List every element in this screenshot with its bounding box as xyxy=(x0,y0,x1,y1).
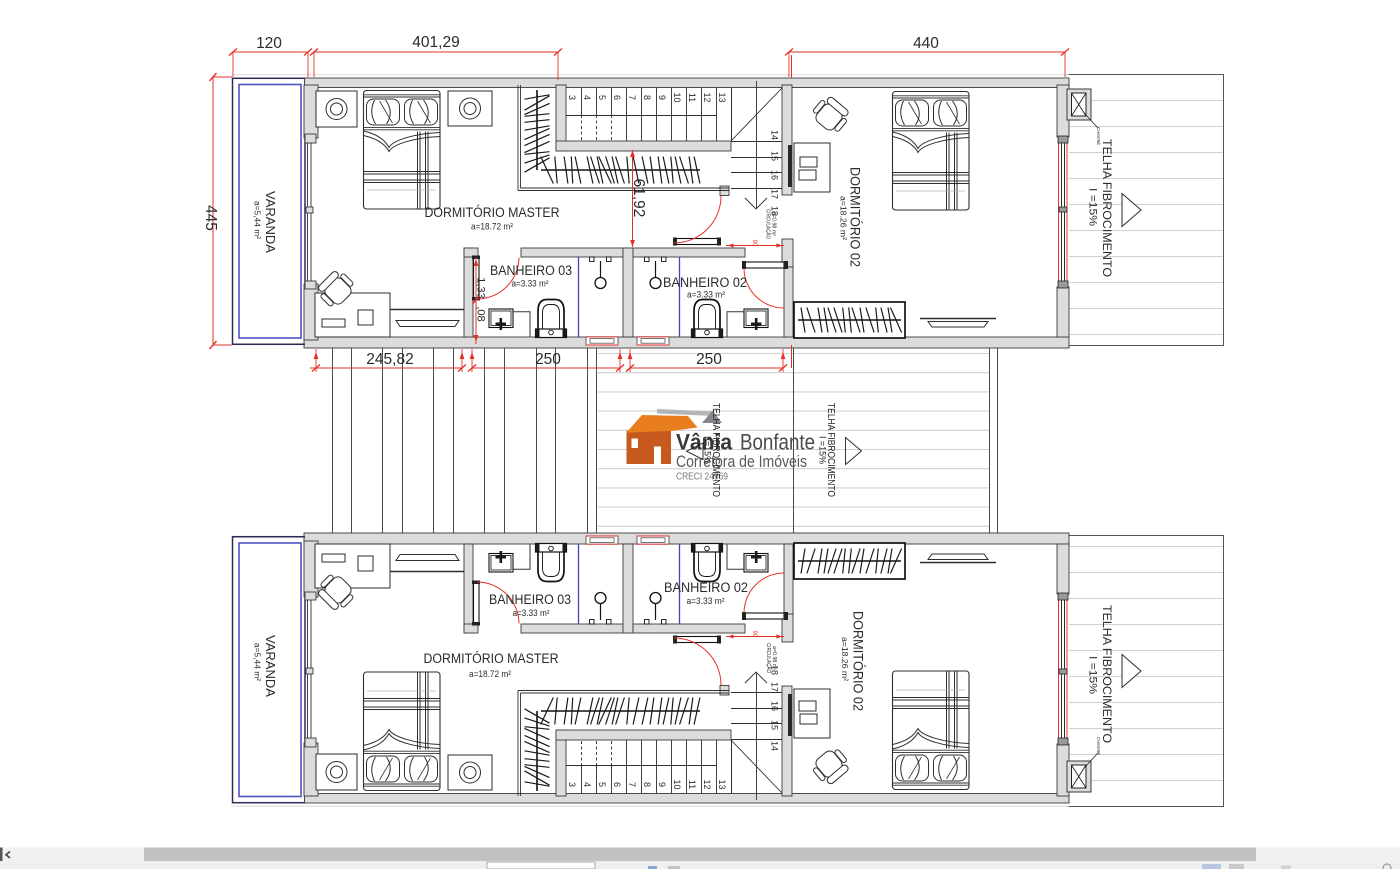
svg-text:TELHA FIBROCIMENTO: TELHA FIBROCIMENTO xyxy=(1100,605,1112,743)
svg-text:7: 7 xyxy=(627,782,637,787)
svg-text:Bonfante: Bonfante xyxy=(740,430,815,455)
svg-text:18: 18 xyxy=(770,206,780,216)
svg-text:15: 15 xyxy=(770,720,780,730)
svg-text:14: 14 xyxy=(770,130,780,140)
svg-text:VARANDA: VARANDA xyxy=(263,191,278,253)
svg-text:3: 3 xyxy=(567,95,577,100)
svg-text:7: 7 xyxy=(627,95,637,100)
svg-text:15: 15 xyxy=(770,151,780,161)
svg-text:13: 13 xyxy=(717,779,727,789)
svg-text:,08: ,08 xyxy=(475,306,487,321)
svg-text:a=5,44 m²: a=5,44 m² xyxy=(253,201,263,239)
svg-text:10: 10 xyxy=(672,92,682,102)
svg-text:DORMITÓRIO MASTER: DORMITÓRIO MASTER xyxy=(425,205,560,220)
svg-text:a=5,44 m²: a=5,44 m² xyxy=(253,643,263,681)
svg-text:5: 5 xyxy=(597,782,607,787)
svg-text:I =15%: I =15% xyxy=(703,436,713,464)
svg-text:6: 6 xyxy=(612,95,622,100)
svg-text:BANHEIRO 03: BANHEIRO 03 xyxy=(489,592,571,607)
svg-text:CHAMINÉ: CHAMINÉ xyxy=(1096,737,1102,755)
svg-text:a=3.33 m²: a=3.33 m² xyxy=(512,279,549,289)
svg-text:5: 5 xyxy=(597,95,607,100)
svg-text:BANHEIRO 02: BANHEIRO 02 xyxy=(664,580,748,595)
svg-text:DORMITÓRIO 02: DORMITÓRIO 02 xyxy=(848,167,863,267)
svg-text:90: 90 xyxy=(751,240,757,247)
svg-text:a=3.33 m²: a=3.33 m² xyxy=(687,596,725,606)
svg-text:17: 17 xyxy=(770,682,780,692)
svg-text:a=3.33 m²: a=3.33 m² xyxy=(513,608,550,618)
svg-text:I =15%: I =15% xyxy=(818,436,828,464)
svg-text:120: 120 xyxy=(256,35,282,52)
svg-text:8: 8 xyxy=(642,782,652,787)
svg-text:VARANDA: VARANDA xyxy=(263,635,278,697)
svg-text:TELHA FIBROCIMENTO: TELHA FIBROCIMENTO xyxy=(1100,139,1112,277)
svg-text:17: 17 xyxy=(770,189,780,199)
svg-text:445: 445 xyxy=(202,205,219,231)
svg-text:12: 12 xyxy=(702,92,712,102)
svg-text:6: 6 xyxy=(612,782,622,787)
svg-text:4: 4 xyxy=(582,95,592,100)
svg-text:a=18.26 m²: a=18.26 m² xyxy=(840,637,850,681)
svg-text:a=18.72 m²: a=18.72 m² xyxy=(469,669,511,680)
svg-text:I =15%: I =15% xyxy=(1087,656,1099,694)
svg-text:440: 440 xyxy=(913,35,939,52)
svg-text:16: 16 xyxy=(770,170,780,180)
svg-text:I =15%: I =15% xyxy=(1087,188,1099,226)
svg-text:16: 16 xyxy=(770,701,780,711)
svg-text:a=18.26 m²: a=18.26 m² xyxy=(839,196,849,240)
svg-text:11: 11 xyxy=(687,780,697,789)
svg-text:250: 250 xyxy=(535,351,561,368)
svg-text:DORMITÓRIO MASTER: DORMITÓRIO MASTER xyxy=(424,651,559,666)
svg-text:18: 18 xyxy=(770,665,780,675)
svg-text:CHAMINÉ: CHAMINÉ xyxy=(1096,127,1102,145)
svg-text:BANHEIRO 02: BANHEIRO 02 xyxy=(663,275,747,290)
svg-text:245,82: 245,82 xyxy=(366,351,413,368)
svg-text:DORMITÓRIO 02: DORMITÓRIO 02 xyxy=(851,611,866,711)
svg-text:10: 10 xyxy=(672,779,682,789)
svg-text:9: 9 xyxy=(657,95,667,100)
svg-text:12: 12 xyxy=(702,779,712,789)
svg-text:61,92: 61,92 xyxy=(630,179,647,218)
svg-text:8: 8 xyxy=(642,95,652,100)
svg-text:BANHEIRO 03: BANHEIRO 03 xyxy=(490,263,572,278)
svg-text:a=3.33 m²: a=3.33 m² xyxy=(687,290,725,300)
svg-text:a=18.72 m²: a=18.72 m² xyxy=(471,222,513,233)
svg-text:14: 14 xyxy=(770,741,780,751)
svg-text:11: 11 xyxy=(687,93,697,102)
svg-text:401,29: 401,29 xyxy=(412,34,459,51)
svg-text:3: 3 xyxy=(567,782,577,787)
svg-text:4: 4 xyxy=(582,782,592,787)
svg-text:90: 90 xyxy=(751,631,757,638)
svg-text:250: 250 xyxy=(696,351,722,368)
svg-text:9: 9 xyxy=(657,782,667,787)
svg-text:1,33: 1,33 xyxy=(475,277,487,298)
svg-text:13: 13 xyxy=(717,92,727,102)
